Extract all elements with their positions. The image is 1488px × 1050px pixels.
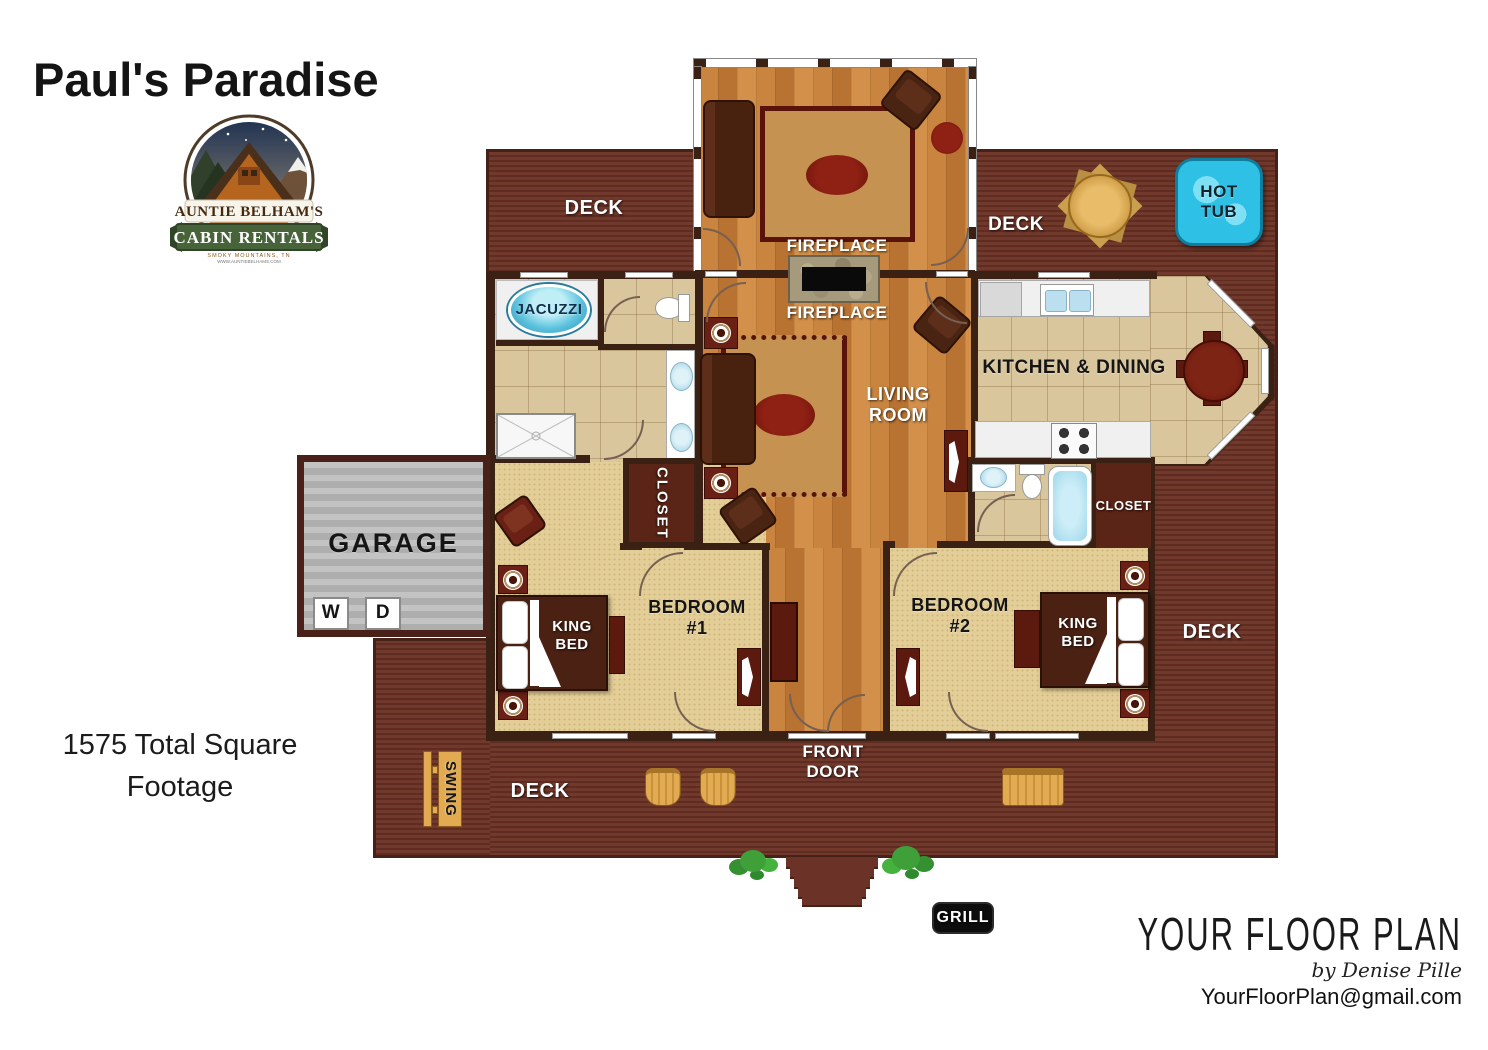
deck-upper-left-label: DECK	[558, 197, 630, 221]
deck-chair	[700, 768, 736, 806]
porch-swing: SWING	[438, 751, 462, 827]
king-bed-1-label: KING BED	[542, 618, 602, 653]
hot-tub-label: HOT TUB	[1194, 182, 1244, 222]
svg-text:WWW.AUNTIEBELHAMS.COM: WWW.AUNTIEBELHAMS.COM	[217, 259, 281, 264]
front-steps	[802, 897, 862, 907]
window-bedroom2	[995, 733, 1079, 739]
deck-edge	[486, 149, 695, 152]
wall-bedroom1-hall	[762, 543, 769, 737]
dryer: D	[365, 597, 401, 630]
sink	[980, 467, 1007, 488]
branding-block: YOUR FLOOR PLAN by Denise Pille YourFloo…	[1080, 908, 1462, 1010]
deck-edge	[373, 638, 376, 858]
washer: W	[313, 597, 349, 630]
fridge	[980, 282, 1022, 317]
grill-badge: GRILL	[932, 902, 994, 934]
toilet-bath2	[1022, 474, 1042, 499]
kitchen-sink	[1040, 284, 1094, 316]
bathtub	[1048, 466, 1092, 546]
door-gap-bed2-deck	[946, 733, 990, 739]
deck-front-label: DECK	[504, 780, 576, 804]
sink	[670, 362, 693, 391]
door-gap-front	[788, 733, 866, 739]
floor-plan-page: Paul's Paradise AUNTIE BELHAM'S	[0, 0, 1488, 1050]
cabin-rentals-logo: AUNTIE BELHAM'S CABIN RENTALS SMOKY MOUN…	[168, 112, 330, 264]
stove	[1051, 423, 1097, 459]
dryer-label: D	[376, 602, 390, 624]
living-rug-center	[753, 394, 815, 436]
bush	[740, 850, 766, 872]
fireplace-insert	[802, 267, 866, 291]
wall-jacuzzi-bottom	[496, 340, 600, 346]
fireplace-label-lower: FIREPLACE	[781, 303, 893, 323]
svg-text:AUNTIE BELHAM'S: AUNTIE BELHAM'S	[175, 204, 324, 220]
window	[520, 272, 568, 278]
window	[1038, 272, 1090, 278]
wall-jacuzzi-right	[598, 278, 604, 344]
branding-name: YOUR FLOOR PLAN	[1080, 908, 1462, 962]
end-table-lamp	[704, 467, 738, 499]
sunroom-window-wall-right	[968, 66, 977, 278]
window-bedroom1	[552, 733, 628, 739]
window	[625, 272, 673, 278]
sunroom-couch	[703, 100, 755, 218]
total-square-footage: 1575 Total Square Footage	[40, 724, 320, 808]
hot-tub: HOT TUB	[1175, 158, 1263, 246]
deck-bench	[1002, 768, 1064, 806]
sunroom-window-wall-left	[693, 66, 702, 278]
tv-stand-living	[944, 430, 968, 492]
nightstand-lamp	[498, 565, 528, 594]
svg-text:CABIN RENTALS: CABIN RENTALS	[173, 228, 324, 247]
wall-hall-bedroom2	[883, 543, 890, 737]
tv-dresser-bedroom1	[737, 648, 761, 706]
deck-left-wrap	[375, 640, 490, 858]
page-title: Paul's Paradise	[33, 52, 379, 107]
closet-1-label: CLOSET	[653, 467, 671, 540]
bedroom1-label: BEDROOM #1	[637, 597, 757, 639]
patio-table	[1060, 166, 1140, 246]
door-gap	[705, 271, 737, 277]
wall-bedroom2-top	[883, 541, 895, 548]
deck-right-label: DECK	[1176, 621, 1248, 645]
sunroom-window-wall-top	[693, 58, 977, 68]
deck-edge	[1275, 149, 1278, 858]
shower	[496, 413, 576, 459]
bedroom1-foot-bench	[609, 616, 625, 674]
deck-edge	[486, 149, 489, 273]
bay-window	[1261, 348, 1269, 394]
sink	[670, 423, 693, 452]
nightstand-lamp	[1120, 689, 1150, 718]
front-door-label: FRONT DOOR	[792, 742, 874, 782]
deck-front	[486, 733, 1278, 858]
hall-console-table	[770, 602, 798, 682]
deck-upper-right-label: DECK	[980, 214, 1052, 236]
bedroom2-label: BEDROOM #2	[900, 595, 1020, 637]
branding-email: YourFloorPlan@gmail.com	[1080, 984, 1462, 1010]
deck-edge	[967, 149, 1278, 152]
living-couch	[700, 353, 756, 465]
fireplace-label-upper: FIREPLACE	[781, 236, 893, 256]
door-gap-bed1-deck	[672, 733, 716, 739]
closet-2-label: CLOSET	[1096, 498, 1152, 513]
door-gap	[936, 271, 968, 277]
grill-label: GRILL	[937, 909, 990, 928]
porch-swing-frame	[423, 751, 432, 827]
deck-edge	[373, 638, 490, 641]
jacuzzi-label: JACUZZI	[508, 301, 590, 319]
deck-chair	[645, 768, 681, 806]
washer-label: W	[322, 602, 340, 624]
king-bed-2-label: KING BED	[1048, 615, 1108, 650]
sunroom-round-table	[931, 122, 963, 154]
sunroom-rug-center	[806, 155, 868, 195]
closet-1: CLOSET	[623, 458, 700, 548]
tv-dresser-bedroom2	[896, 648, 920, 706]
dining-table	[1183, 340, 1245, 402]
toilet-tank-bath1	[678, 294, 690, 322]
garage-label: GARAGE	[307, 528, 480, 560]
nightstand-lamp	[1120, 561, 1150, 590]
closet-2: CLOSET	[1091, 463, 1151, 548]
bush	[892, 846, 920, 870]
living-room-label: LIVING ROOM	[852, 384, 944, 426]
swing-label: SWING	[441, 761, 459, 817]
kitchen-dining-label: KITCHEN & DINING	[978, 357, 1170, 379]
nightstand-lamp	[498, 691, 528, 720]
